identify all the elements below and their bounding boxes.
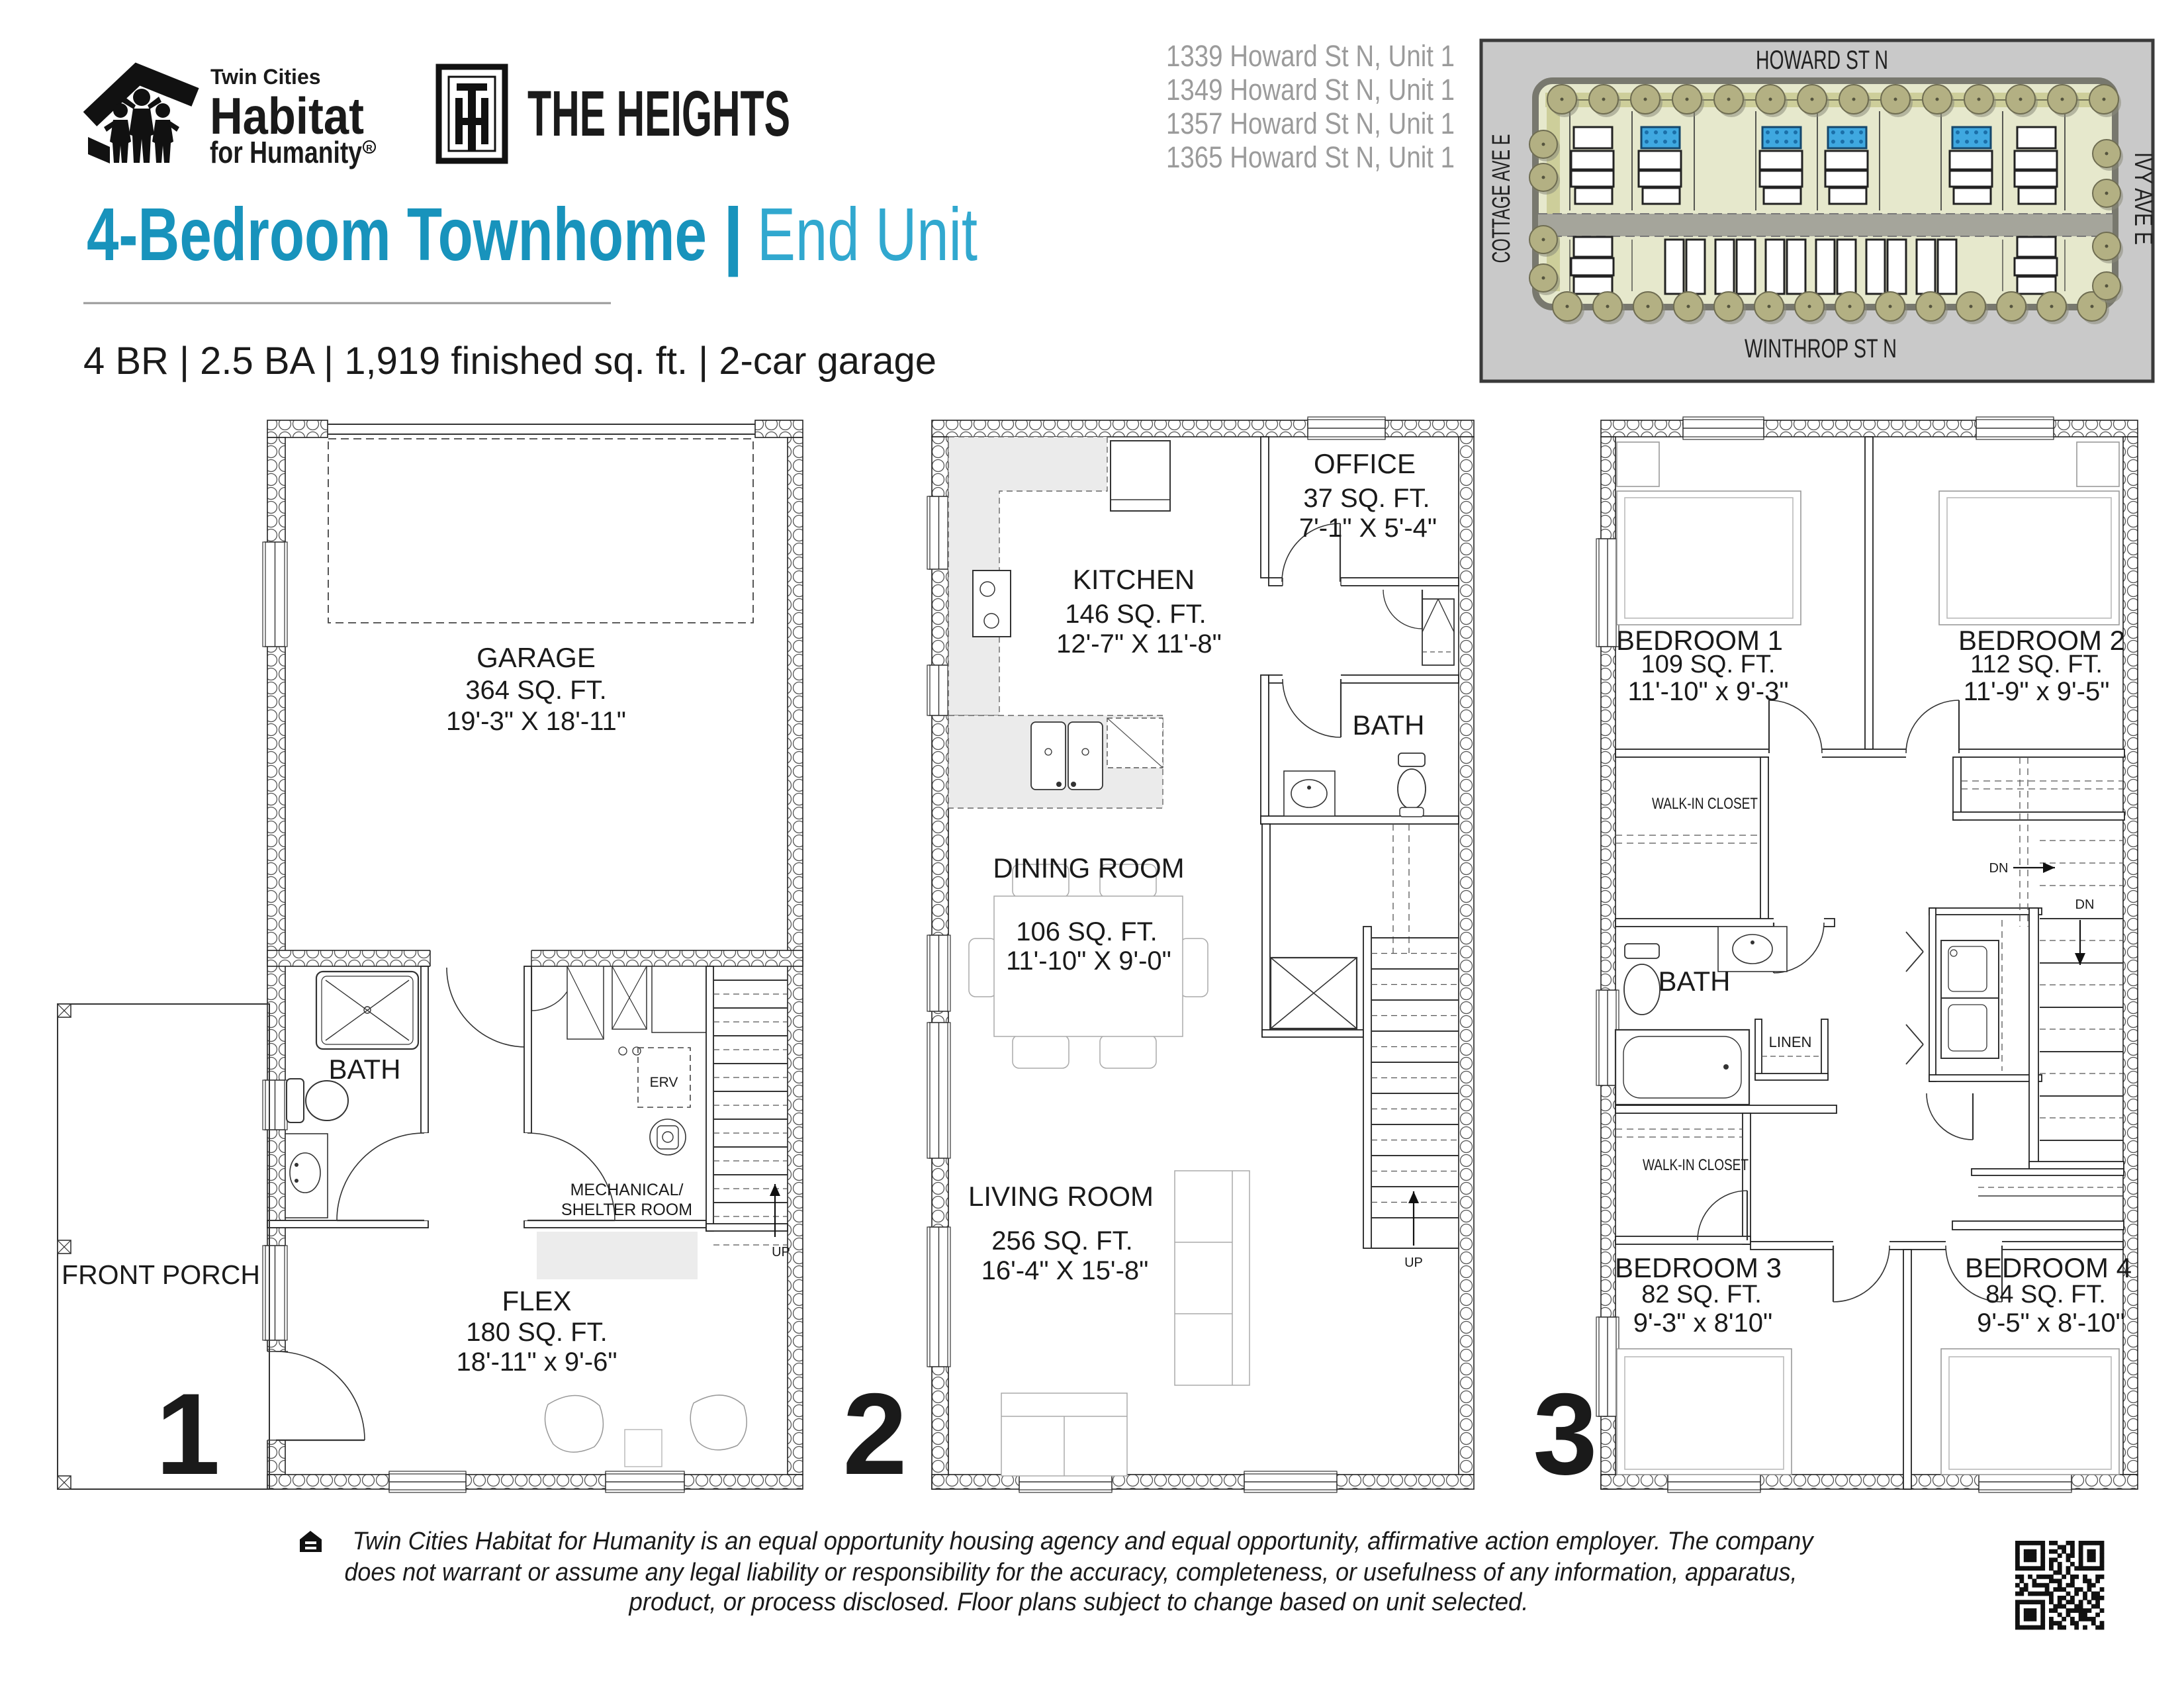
svg-text:4-Bedroom Townhome: 4-Bedroom Townhome [87, 193, 707, 276]
svg-text:16'-4" X 15'-8": 16'-4" X 15'-8" [981, 1256, 1149, 1285]
svg-text:does not warrant or assume any: does not warrant or assume any legal lia… [345, 1559, 1797, 1586]
svg-text:BATH: BATH [329, 1054, 401, 1085]
svg-text:for Humanity: for Humanity [210, 135, 362, 169]
svg-text:OFFICE: OFFICE [1314, 448, 1416, 479]
svg-text:37 SQ. FT.: 37 SQ. FT. [1303, 484, 1430, 513]
svg-text:LIVING ROOM: LIVING ROOM [968, 1181, 1154, 1212]
svg-text:1339 Howard St N, Unit 1: 1339 Howard St N, Unit 1 [1166, 39, 1455, 73]
svg-text:KITCHEN: KITCHEN [1073, 564, 1195, 595]
svg-text:9'-3" x 8'10": 9'-3" x 8'10" [1633, 1308, 1772, 1338]
svg-text:180 SQ. FT.: 180 SQ. FT. [466, 1318, 607, 1347]
svg-text:FRONT PORCH: FRONT PORCH [62, 1259, 260, 1290]
svg-text:112 SQ. FT.: 112 SQ. FT. [1970, 651, 2103, 678]
svg-text:11'-9" x 9'-5": 11'-9" x 9'-5" [1964, 677, 2110, 706]
svg-text:BEDROOM 4: BEDROOM 4 [1965, 1252, 2132, 1283]
svg-text:1365 Howard St N, Unit 1: 1365 Howard St N, Unit 1 [1166, 140, 1455, 174]
svg-text:ERV: ERV [650, 1075, 678, 1090]
svg-text:84 SQ. FT.: 84 SQ. FT. [1985, 1281, 2106, 1308]
svg-text:DN: DN [2075, 897, 2095, 912]
svg-text:2: 2 [842, 1370, 907, 1499]
svg-text:COTTAGE AVE E: COTTAGE AVE E [1488, 134, 1516, 263]
svg-text:7'-1" X 5'-4": 7'-1" X 5'-4" [1299, 514, 1437, 543]
svg-text:106 SQ. FT.: 106 SQ. FT. [1016, 917, 1157, 946]
svg-text:IVY AVE E: IVY AVE E [2129, 152, 2157, 245]
svg-text:146 SQ. FT.: 146 SQ. FT. [1065, 600, 1206, 629]
svg-text:18'-11" x 9'-6": 18'-11" x 9'-6" [456, 1348, 617, 1377]
svg-text:product, or process disclosed.: product, or process disclosed. Floor pla… [629, 1588, 1529, 1616]
svg-text:WALK-IN CLOSET: WALK-IN CLOSET [1643, 1156, 1749, 1174]
svg-text:UP: UP [1404, 1256, 1423, 1270]
svg-text:9'-5" x 8'-10": 9'-5" x 8'-10" [1977, 1308, 2125, 1338]
svg-text:UP: UP [772, 1245, 790, 1259]
svg-text:12'-7" X 11'-8": 12'-7" X 11'-8" [1056, 629, 1222, 659]
svg-text:FLEX: FLEX [502, 1285, 571, 1316]
svg-text:256 SQ. FT.: 256 SQ. FT. [991, 1226, 1132, 1256]
svg-text:|: | [723, 193, 744, 277]
svg-text:Twin Cities: Twin Cities [210, 65, 321, 89]
svg-text:End Unit: End Unit [757, 193, 978, 276]
svg-text:3: 3 [1533, 1370, 1597, 1499]
svg-text:Twin Cities Habitat for Humani: Twin Cities Habitat for Humanity is an e… [353, 1528, 1815, 1555]
svg-text:R: R [366, 143, 373, 153]
svg-text:HOWARD ST N: HOWARD ST N [1756, 46, 1888, 75]
svg-text:DINING ROOM: DINING ROOM [993, 852, 1184, 884]
svg-text:GARAGE: GARAGE [477, 642, 596, 673]
svg-text:1: 1 [156, 1370, 220, 1499]
svg-text:BATH: BATH [1659, 966, 1731, 997]
svg-text:WINTHROP ST N: WINTHROP ST N [1745, 334, 1897, 363]
svg-text:THE HEIGHTS: THE HEIGHTS [527, 77, 790, 150]
svg-text:1349 Howard St N, Unit 1: 1349 Howard St N, Unit 1 [1166, 73, 1455, 107]
svg-text:LINEN: LINEN [1769, 1034, 1812, 1050]
svg-text:364 SQ. FT.: 364 SQ. FT. [465, 676, 606, 705]
svg-text:WALK-IN CLOSET: WALK-IN CLOSET [1652, 795, 1758, 813]
svg-text:BATH: BATH [1353, 709, 1425, 741]
svg-text:BEDROOM 3: BEDROOM 3 [1615, 1252, 1782, 1283]
svg-text:82 SQ. FT.: 82 SQ. FT. [1641, 1281, 1762, 1308]
svg-text:4 BR | 2.5 BA | 1,919 finished: 4 BR | 2.5 BA | 1,919 finished sq. ft. |… [83, 340, 936, 383]
svg-text:1357 Howard St N, Unit 1: 1357 Howard St N, Unit 1 [1166, 107, 1455, 140]
svg-text:11'-10" x 9'-3": 11'-10" x 9'-3" [1627, 677, 1788, 706]
svg-text:109 SQ. FT.: 109 SQ. FT. [1641, 651, 1776, 678]
svg-text:19'-3" X 18'-11": 19'-3" X 18'-11" [446, 707, 626, 736]
svg-text:MECHANICAL/: MECHANICAL/ [570, 1181, 684, 1199]
svg-text:DN: DN [1989, 861, 2009, 876]
svg-text:SHELTER ROOM: SHELTER ROOM [561, 1201, 692, 1219]
svg-text:11'-10" X 9'-0": 11'-10" X 9'-0" [1006, 946, 1171, 976]
